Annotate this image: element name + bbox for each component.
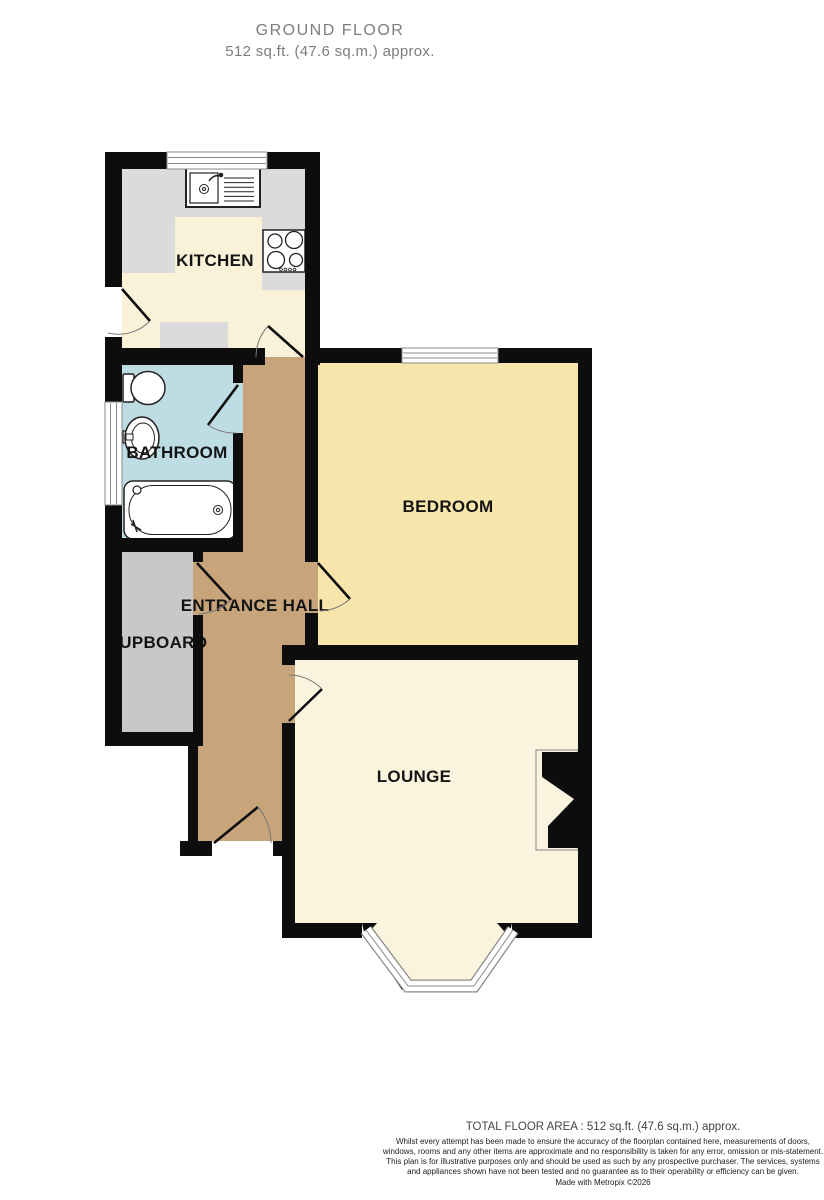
- sink-icon: [186, 168, 260, 207]
- bathroom-label: BATHROOM: [126, 443, 227, 462]
- bathtub-icon: [124, 481, 236, 539]
- floorplan-svg: KITCHEN BATHROOM BEDROOM ENTRANCE HALL C…: [0, 0, 824, 1200]
- lounge-label: LOUNGE: [377, 767, 452, 786]
- bathroom-window: [105, 402, 122, 505]
- lounge-floor: [295, 660, 578, 988]
- bedroom-label: BEDROOM: [403, 497, 494, 516]
- entrance-hall-label: ENTRANCE HALL: [181, 596, 329, 615]
- kitchen-label: KITCHEN: [176, 251, 254, 270]
- footer: TOTAL FLOOR AREA : 512 sq.ft. (47.6 sq.m…: [380, 1121, 824, 1187]
- hob-icon: [263, 230, 305, 272]
- total-floor-area: TOTAL FLOOR AREA : 512 sq.ft. (47.6 sq.m…: [380, 1121, 824, 1133]
- kitchen-window: [167, 152, 267, 169]
- toilet-icon: [123, 372, 165, 405]
- disclaimer-text: Whilst every attempt has been made to en…: [380, 1137, 824, 1177]
- bedroom-window: [402, 348, 498, 363]
- metropix-credit: Made with Metropix ©2026: [380, 1178, 824, 1187]
